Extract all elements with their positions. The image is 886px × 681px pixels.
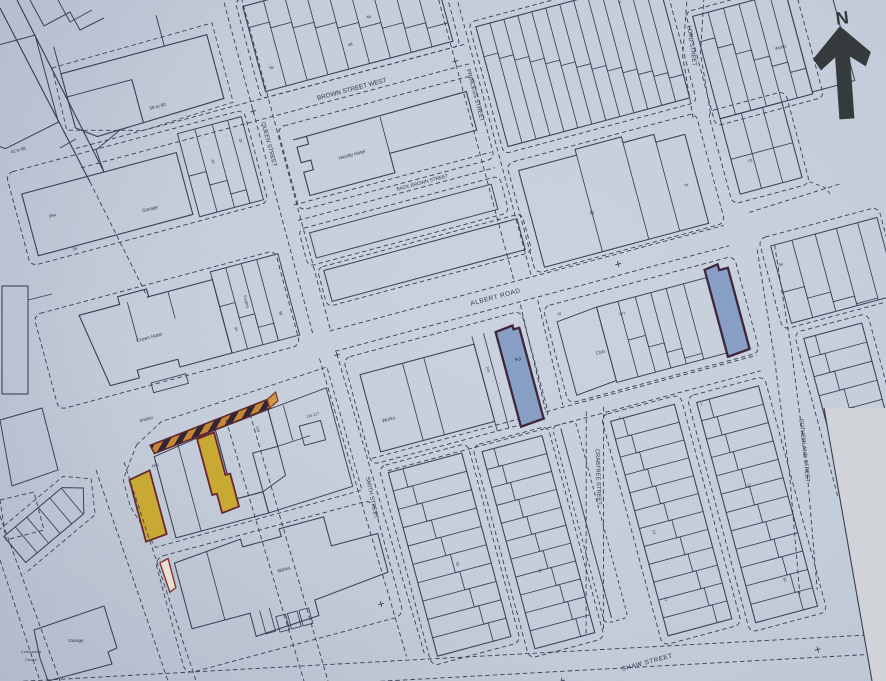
svg-text:N: N — [835, 7, 850, 28]
